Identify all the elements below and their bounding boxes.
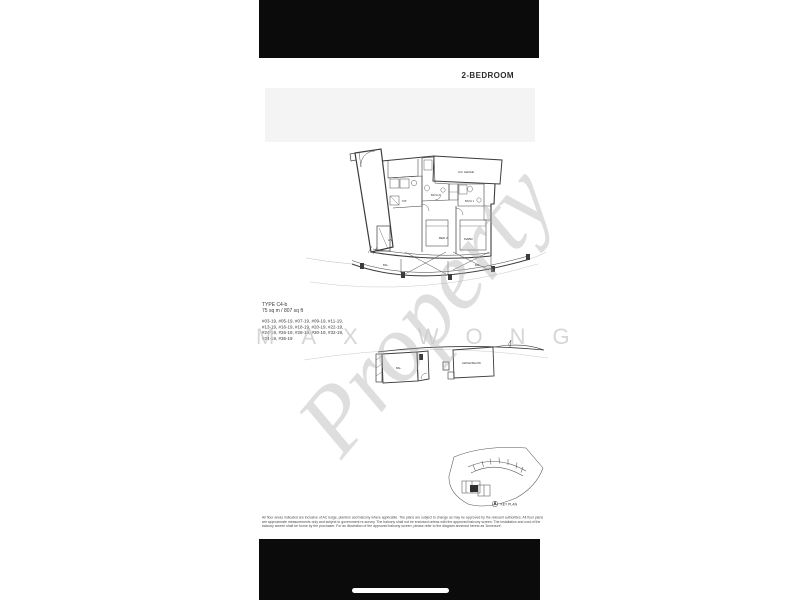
disclaimer-text: All floor areas indicated are inclusive … (262, 516, 542, 529)
key-plan-site (449, 447, 543, 506)
room-label-bal-right: BAL. (475, 263, 481, 267)
unit-stack-line: #34-19, #36-19 (262, 336, 442, 342)
room-label-bath1: BATH 1 (465, 199, 474, 203)
lower-ledge-detail (304, 340, 548, 383)
room-label-living: LIV (388, 238, 393, 242)
room-label-master: MABR (464, 237, 474, 241)
room-label-bath2: BATH 2 (431, 193, 440, 197)
room-label-lower-bal: BAL. (396, 366, 402, 370)
page-title: 2-BEDROOM (418, 71, 514, 80)
floor-plan-drawing: A/C LEDGE KIT. BATH 2 BATH 1 BED 2 MABR … (298, 140, 550, 400)
key-plan-drawing: KEY PLAN (438, 443, 550, 515)
key-plan-label: KEY PLAN (501, 503, 518, 507)
room-label-kitchen: KIT. (402, 199, 407, 203)
floor-plan-walls (306, 149, 546, 287)
status-letterbox-bar (259, 0, 539, 58)
north-arrow-icon (492, 501, 498, 507)
room-label-bed2: BED 2 (439, 236, 448, 240)
unit-info-block: TYPE C4-b 75 sq m / 807 sq ft #03-19, #0… (262, 302, 442, 342)
room-label-ac-ledge: A/C LEDGE (458, 170, 474, 174)
home-indicator[interactable] (352, 588, 449, 593)
key-plan-highlighted-stack (470, 485, 478, 492)
unit-area: 75 sq m / 807 sq ft (262, 308, 442, 314)
bottom-letterbox-bar (259, 539, 540, 600)
disclaimer-line: balcony screen shall be borne by the pur… (262, 525, 542, 529)
room-label-ledge-below: LEDGE BELOW (462, 361, 481, 365)
room-label-bal-left: BAL. (383, 263, 389, 267)
screenshot-canvas: 2-BEDROOM (0, 0, 800, 600)
header-band (265, 88, 535, 142)
